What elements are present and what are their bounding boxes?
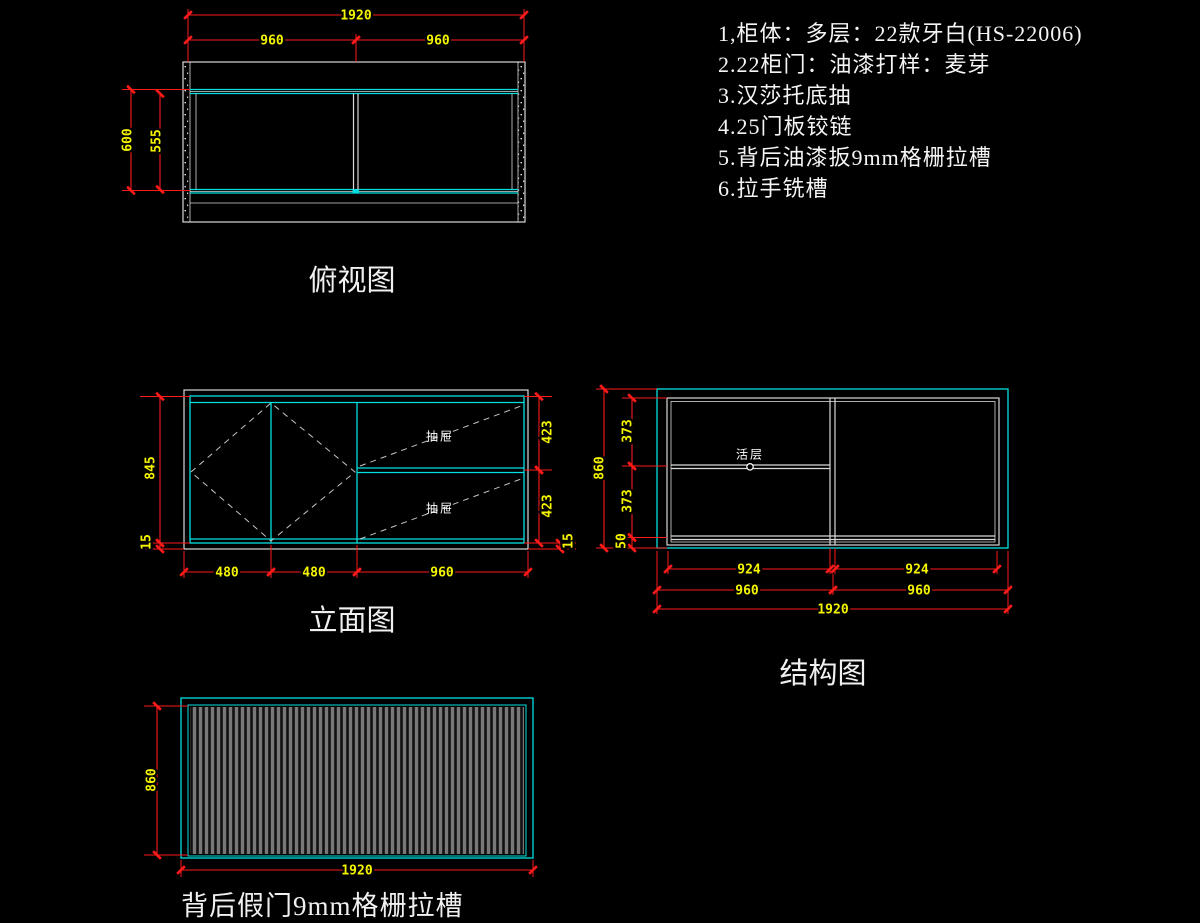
label-drawer-upper: 抽屉 <box>426 430 454 444</box>
dim-struct-height: 860 <box>593 456 608 480</box>
elevation-dimensions: 845 15 423 423 15 480 480 960 <box>140 397 577 581</box>
dim-elev-door-left: 480 <box>215 566 239 581</box>
elevation-door-swing-lines <box>191 403 355 541</box>
structure-dimensions: 860 373 373 50 924 924 960 960 1920 <box>593 389 1009 618</box>
elevation-cabinet-outline <box>184 390 528 549</box>
elevation-view-title: 立面图 <box>252 597 452 639</box>
dim-elev-bottom-left: 15 <box>140 534 155 550</box>
dim-elev-drawer-upper: 423 <box>541 420 556 443</box>
top-view-right-side-panel-hatch <box>518 62 525 222</box>
dim-struct-lower-section: 373 <box>621 489 636 512</box>
structure-view-title: 结构图 <box>723 650 923 692</box>
dim-top-left-width: 960 <box>260 34 284 49</box>
notes-list: 1,柜体：多层：22款牙白(HS-22006) 2.22柜门：油漆打样：麦芽 3… <box>718 18 1083 204</box>
top-view-dimensions: 1920 960 960 600 555 <box>121 9 525 191</box>
cad-canvas: 1920 960 960 600 555 抽屉 抽屉 <box>0 0 1200 923</box>
back-panel-view-title: 背后假门9mm格栅拉槽 <box>181 884 464 923</box>
dim-struct-clear-right: 924 <box>905 563 929 578</box>
dim-struct-clear-left: 924 <box>737 563 761 578</box>
dim-struct-plinth: 50 <box>615 533 630 549</box>
dim-elev-drawer-bay: 960 <box>430 566 454 581</box>
structure-drawing: 活层 <box>657 389 1008 548</box>
dim-top-right-width: 960 <box>426 34 450 49</box>
dim-top-depth: 600 <box>121 128 136 152</box>
label-adjustable-shelf: 活层 <box>736 448 764 462</box>
note-line: 5.背后油漆扳9mm格栅拉槽 <box>718 142 1083 173</box>
note-line: 1,柜体：多层：22款牙白(HS-22006) <box>718 18 1083 49</box>
dim-elev-door-right: 480 <box>302 566 326 581</box>
dim-struct-bay-right: 960 <box>907 584 931 599</box>
back-panel-grille <box>190 707 524 854</box>
label-drawer-lower: 抽屉 <box>426 502 454 516</box>
top-view-title: 俯视图 <box>252 257 452 299</box>
top-view-left-side-panel-hatch <box>183 62 190 222</box>
shelf-pin-symbol <box>747 464 753 470</box>
dim-top-total-width: 1920 <box>340 9 371 24</box>
dim-struct-bay-left: 960 <box>735 584 759 599</box>
top-view-drawing <box>183 62 525 222</box>
dim-struct-total-width: 1920 <box>817 603 848 618</box>
structure-inner-frame <box>667 398 999 545</box>
dim-elev-bottom-right: 15 <box>562 533 577 549</box>
dim-struct-upper-section: 373 <box>621 419 636 442</box>
elevation-drawing: 抽屉 抽屉 <box>184 390 528 549</box>
dim-top-inner-depth: 555 <box>150 129 165 152</box>
note-line: 6.拉手铣槽 <box>718 173 1083 204</box>
note-line: 4.25门板铰链 <box>718 111 1083 142</box>
note-line: 2.22柜门：油漆打样：麦芽 <box>718 49 1083 80</box>
dim-back-width: 1920 <box>341 864 372 879</box>
note-line: 3.汉莎托底抽 <box>718 80 1083 111</box>
dim-elev-drawer-lower: 423 <box>541 494 556 517</box>
back-panel-drawing <box>181 698 533 858</box>
dim-back-height: 860 <box>145 768 160 792</box>
dim-elev-inner-height: 845 <box>144 456 159 479</box>
